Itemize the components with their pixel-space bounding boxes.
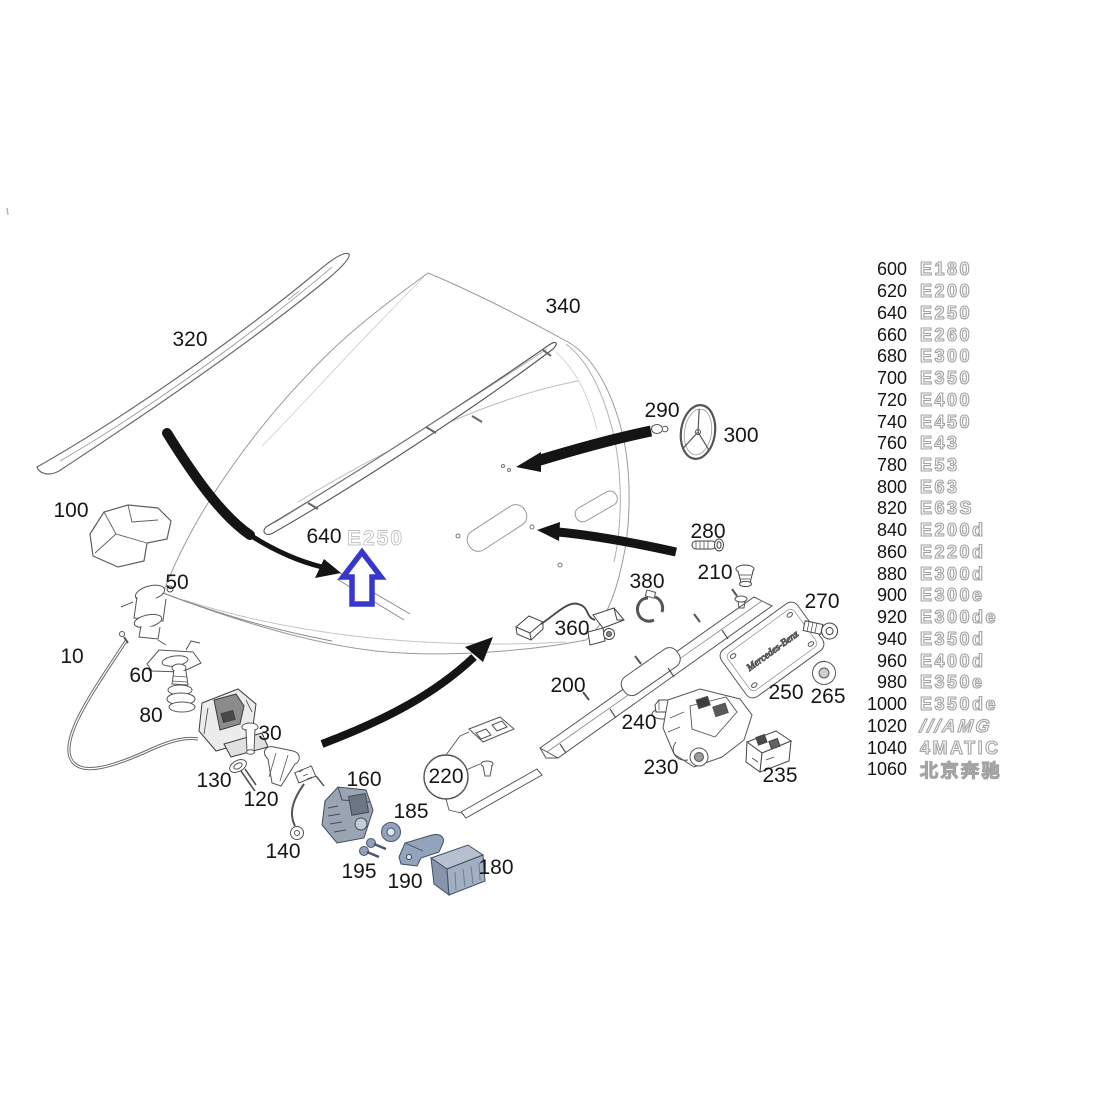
part-300-star-emblem-drawing: [677, 403, 718, 461]
emblem-code: 720: [845, 390, 907, 411]
part-label-120: 120: [243, 788, 278, 812]
part-label-320: 320: [172, 328, 207, 352]
emblem-badge: E260: [920, 325, 972, 346]
emblem-badge: E350e: [920, 672, 985, 693]
part-label-265: 265: [810, 685, 845, 709]
emblem-row-880: 880E300d: [845, 563, 1002, 585]
part-100-drawing: [90, 505, 171, 567]
emblem-row-760: 760E43: [845, 433, 1002, 455]
part-label-60: 60: [129, 664, 152, 688]
emblem-badge: E250: [920, 303, 972, 324]
emblem-code: 940: [845, 629, 907, 650]
emblem-code: 760: [845, 433, 907, 454]
part-label-290: 290: [644, 399, 679, 423]
trunk-lid-drawing: [163, 273, 629, 654]
emblem-code: 800: [845, 477, 907, 498]
part-label-80: 80: [139, 704, 162, 728]
part-label-220: 220: [428, 765, 463, 789]
emblem-badge: 北京奔驰: [920, 757, 1002, 783]
emblem-badge: E300e: [920, 585, 985, 606]
part-180-drawing: [431, 845, 485, 895]
emblem-badge: E200d: [920, 520, 986, 541]
lid-emblem-badge-text: E250: [347, 527, 404, 550]
emblem-row-660: 660E260: [845, 324, 1002, 346]
emblem-badge: 4MATIC: [920, 738, 1001, 759]
part-130-drawing: [227, 757, 256, 791]
emblem-row-960: 960E400d: [845, 650, 1002, 672]
part-label-640: 640: [306, 525, 341, 549]
emblem-badge: E63S: [920, 498, 974, 519]
part-210-drawing: [736, 565, 754, 587]
part-label-280: 280: [690, 520, 725, 544]
part-label-340: 340: [545, 295, 580, 319]
emblem-code: 780: [845, 455, 907, 476]
emblem-list: 600E180620E200640E250660E260680E300700E3…: [845, 259, 1002, 781]
emblem-row-800: 800E63: [845, 476, 1002, 498]
parts-diagram-canvas: E250: [0, 0, 1100, 1100]
emblem-row-1040: 10404MATIC: [845, 737, 1002, 759]
emblem-row-860: 860E220d: [845, 542, 1002, 564]
emblem-code: 1000: [845, 694, 907, 715]
emblem-code: 1060: [845, 759, 907, 780]
emblem-code: 840: [845, 520, 907, 541]
emblem-code: 1040: [845, 738, 907, 759]
emblem-code: 740: [845, 412, 907, 433]
emblem-row-980: 980E350e: [845, 672, 1002, 694]
emblem-code: 640: [845, 303, 907, 324]
emblem-badge: E350d: [920, 629, 986, 650]
part-label-140: 140: [265, 840, 300, 864]
part-label-10: 10: [60, 645, 83, 669]
emblem-code: 880: [845, 564, 907, 585]
emblem-row-620: 620E200: [845, 281, 1002, 303]
emblem-row-920: 920E300de: [845, 607, 1002, 629]
part-label-180: 180: [478, 856, 513, 880]
part-160-drawing: [322, 787, 373, 843]
emblem-code: 1020: [845, 716, 907, 737]
edge-artifact: [7, 208, 8, 215]
emblem-row-720: 720E400: [845, 389, 1002, 411]
emblem-badge: E400d: [920, 651, 986, 672]
emblem-row-840: 840E200d: [845, 520, 1002, 542]
emblem-badge: E200: [920, 281, 972, 302]
emblem-badge: E300d: [920, 564, 986, 585]
part-185-drawing: [382, 823, 401, 842]
part-label-210: 210: [697, 561, 732, 585]
emblem-row-940: 940E350d: [845, 628, 1002, 650]
emblem-badge: E350: [920, 368, 972, 389]
emblem-badge: E220d: [920, 542, 986, 563]
emblem-badge: E63: [920, 477, 960, 498]
emblem-row-700: 700E350: [845, 368, 1002, 390]
part-label-100: 100: [53, 499, 88, 523]
emblem-code: 900: [845, 585, 907, 606]
emblem-row-680: 680E300: [845, 346, 1002, 368]
emblem-row-900: 900E300e: [845, 585, 1002, 607]
emblem-code: 620: [845, 281, 907, 302]
part-label-185: 185: [393, 800, 428, 824]
emblem-code: 700: [845, 368, 907, 389]
emblem-row-1060: 1060北京奔驰: [845, 759, 1002, 781]
part-label-360: 360: [554, 617, 589, 641]
emblem-row-600: 600E180: [845, 259, 1002, 281]
part-label-250: 250: [768, 681, 803, 705]
emblem-code: 820: [845, 498, 907, 519]
part-195-drawing: [360, 839, 387, 858]
emblem-badge: E53: [920, 455, 960, 476]
part-label-230: 230: [643, 756, 678, 780]
part-label-160: 160: [346, 768, 381, 792]
emblem-code: 660: [845, 325, 907, 346]
emblem-code: 920: [845, 607, 907, 628]
emblem-code: 860: [845, 542, 907, 563]
emblem-row-640: 640E250: [845, 302, 1002, 324]
emblem-badge: E350de: [920, 694, 998, 715]
part-label-240: 240: [621, 711, 656, 735]
emblem-badge: E43: [920, 433, 960, 454]
emblem-badge: E400: [920, 390, 972, 411]
emblem-badge: E300de: [920, 607, 998, 628]
part-label-30: 30: [258, 722, 281, 746]
part-380-drawing: [637, 590, 662, 621]
part-label-195: 195: [341, 860, 376, 884]
part-label-270: 270: [804, 590, 839, 614]
part-label-50: 50: [165, 571, 188, 595]
part-265-drawing: [813, 661, 836, 685]
part-290-drawing: [652, 425, 669, 434]
emblem-row-1000: 1000E350de: [845, 694, 1002, 716]
emblem-code: 980: [845, 672, 907, 693]
emblem-badge: ///AMG: [919, 716, 993, 737]
emblem-row-780: 780E53: [845, 455, 1002, 477]
part-140-drawing: [291, 766, 325, 840]
emblem-code: 600: [845, 259, 907, 280]
part-label-190: 190: [387, 870, 422, 894]
part-label-300: 300: [723, 424, 758, 448]
part-label-235: 235: [762, 764, 797, 788]
part-120-drawing: [264, 747, 299, 786]
emblem-badge: E300: [920, 346, 972, 367]
part-label-130: 130: [196, 769, 231, 793]
emblem-code: 960: [845, 651, 907, 672]
emblem-row-1020: 1020///AMG: [845, 715, 1002, 737]
emblem-badge: E180: [920, 259, 972, 280]
part-label-200: 200: [550, 674, 585, 698]
emblem-row-740: 740E450: [845, 411, 1002, 433]
emblem-code: 680: [845, 346, 907, 367]
emblem-row-820: 820E63S: [845, 498, 1002, 520]
emblem-badge: E450: [920, 412, 972, 433]
part-label-380: 380: [629, 570, 664, 594]
